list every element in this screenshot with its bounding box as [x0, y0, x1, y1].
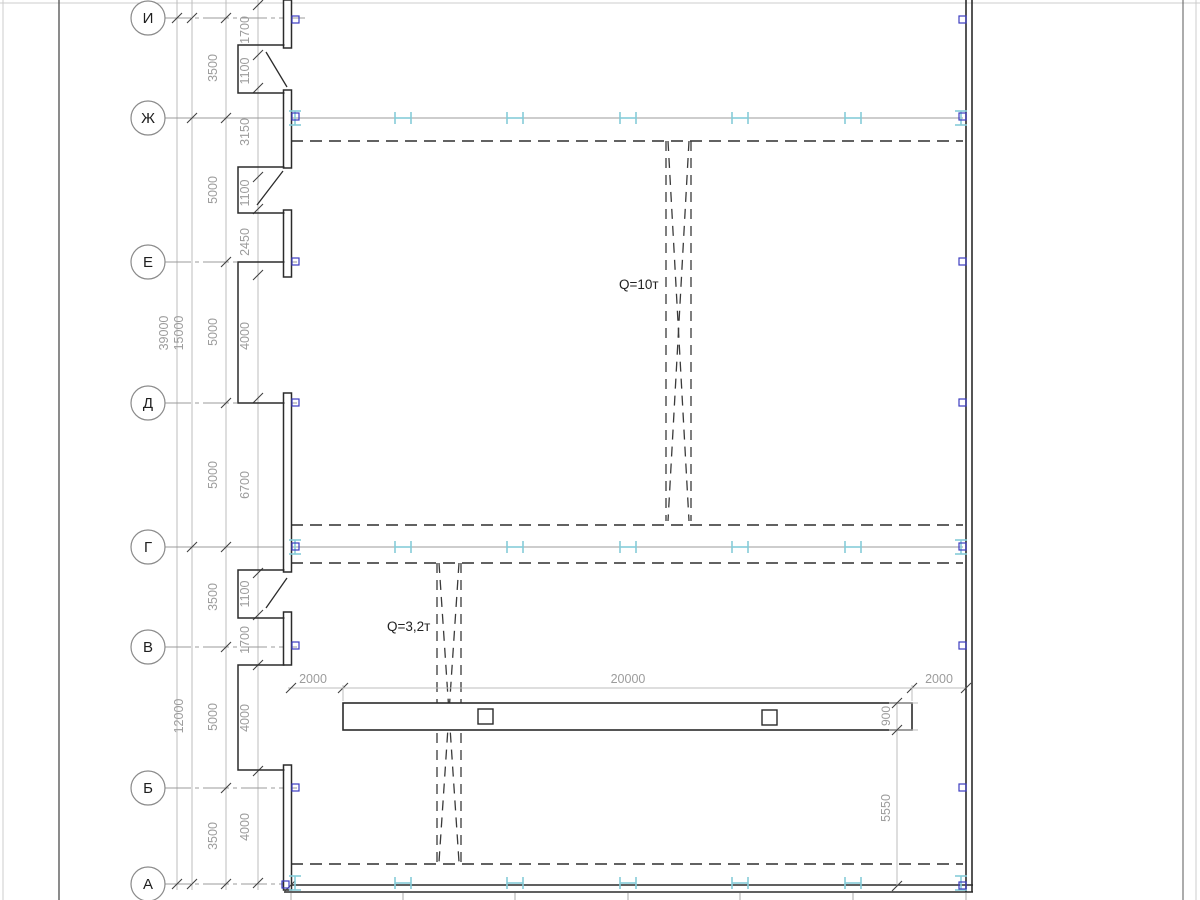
column-marker — [959, 258, 966, 265]
beam-dim-label: 2000 — [925, 672, 953, 686]
dim-label: 12000 — [172, 699, 186, 734]
dim-label: 6700 — [238, 471, 252, 499]
dim-label: 3150 — [238, 118, 252, 146]
crane-capacity-label: Q=10т — [619, 277, 659, 292]
dim-label: 1700 — [238, 16, 252, 44]
beam-dim-label: 2000 — [299, 672, 327, 686]
plan-canvas[interactable]: 3900015000120003500500050005000350050003… — [0, 0, 1200, 900]
axis-letter-Ж: Ж — [141, 110, 155, 127]
column-marker — [959, 113, 966, 120]
wall-panel-3 — [284, 393, 292, 572]
dim-label-900: 900 — [879, 706, 893, 726]
dim-label: 5000 — [206, 176, 220, 204]
wall-panel-5 — [284, 765, 292, 890]
axis-letter-Е: Е — [143, 254, 153, 271]
dim-label: 5000 — [206, 318, 220, 346]
column-marker — [959, 642, 966, 649]
dim-label: 5000 — [206, 461, 220, 489]
wall-panel-0 — [284, 0, 292, 48]
drawing-page: 3900015000120003500500050005000350050003… — [0, 0, 1200, 900]
dim-label: 15000 — [172, 316, 186, 351]
axis-letter-В: В — [143, 639, 153, 656]
axis-letter-Б: Б — [143, 780, 153, 797]
wall-panel-4 — [284, 612, 292, 665]
dim-label: 3500 — [206, 822, 220, 850]
dim-label: 3500 — [206, 54, 220, 82]
dim-label: 2450 — [238, 228, 252, 256]
monorail-support-0 — [478, 709, 493, 724]
dim-label: 4000 — [238, 813, 252, 841]
column-marker — [292, 16, 299, 23]
axis-letter-И: И — [143, 10, 154, 27]
door-leaf-1 — [257, 171, 283, 205]
axis-letter-Г: Г — [144, 539, 152, 556]
dim-label: 1100 — [238, 581, 252, 608]
column-marker — [959, 16, 966, 23]
dim-label: 39000 — [157, 316, 171, 351]
dim-label: 4000 — [238, 322, 252, 350]
dim-label: 1700 — [238, 626, 252, 654]
dim-label: 1100 — [238, 180, 252, 207]
column-marker — [292, 642, 299, 649]
column-marker — [959, 784, 966, 791]
dim-label-5550: 5550 — [879, 794, 893, 822]
crane-capacity-label: Q=3,2т — [387, 619, 430, 634]
beam-dim-label: 20000 — [611, 672, 646, 686]
door-leaf-2 — [266, 578, 287, 608]
monorail-beam — [343, 703, 912, 730]
axis-letter-А: А — [143, 876, 153, 893]
dim-label: 4000 — [238, 704, 252, 732]
dim-label: 5000 — [206, 703, 220, 731]
door-leaf-0 — [266, 52, 287, 87]
axis-letter-Д: Д — [143, 395, 153, 412]
dim-label: 1100 — [238, 58, 252, 85]
dim-label: 3500 — [206, 583, 220, 611]
monorail-support-1 — [762, 710, 777, 725]
wall-panel-2 — [284, 210, 292, 277]
column-marker — [959, 399, 966, 406]
wall-panel-1 — [284, 90, 292, 168]
